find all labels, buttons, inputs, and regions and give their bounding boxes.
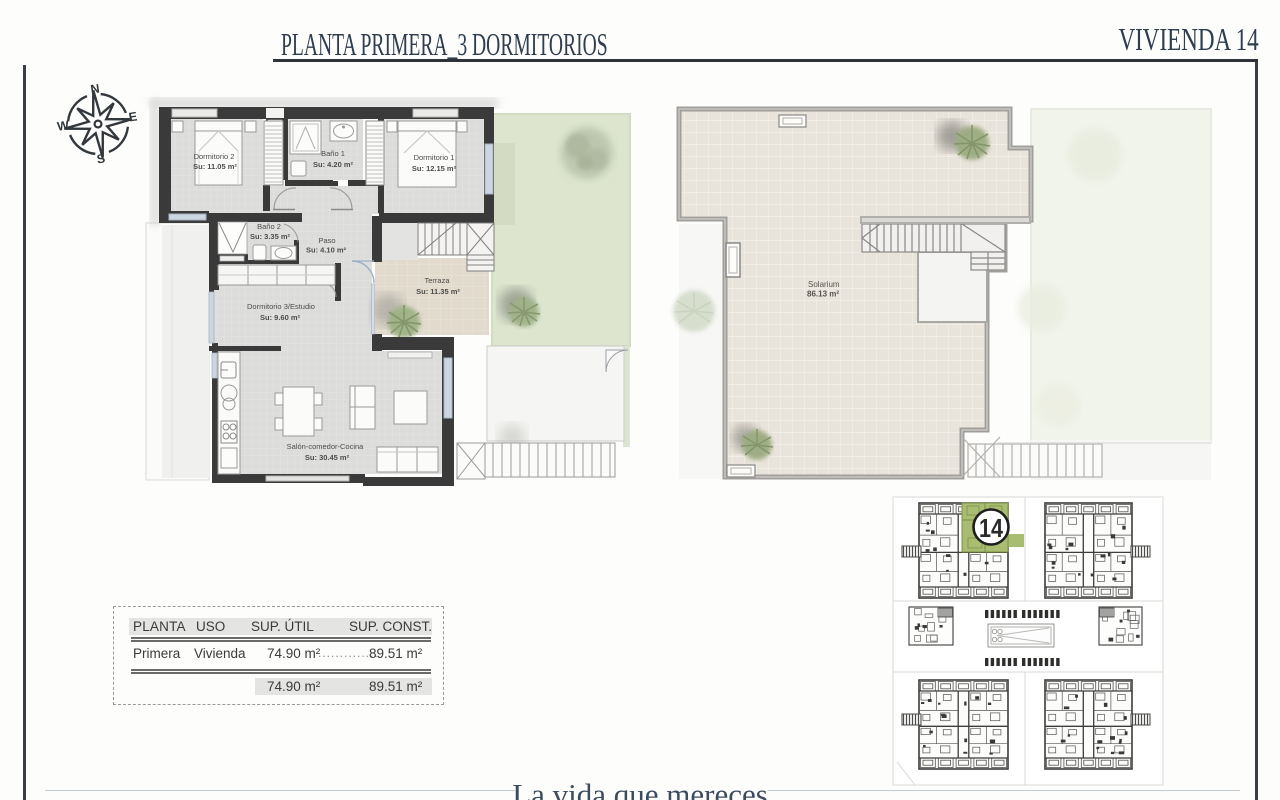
- svg-text:86.13 m²: 86.13 m²: [807, 290, 839, 299]
- svg-text:14: 14: [979, 513, 1003, 543]
- svg-text:Solarium: Solarium: [808, 280, 840, 289]
